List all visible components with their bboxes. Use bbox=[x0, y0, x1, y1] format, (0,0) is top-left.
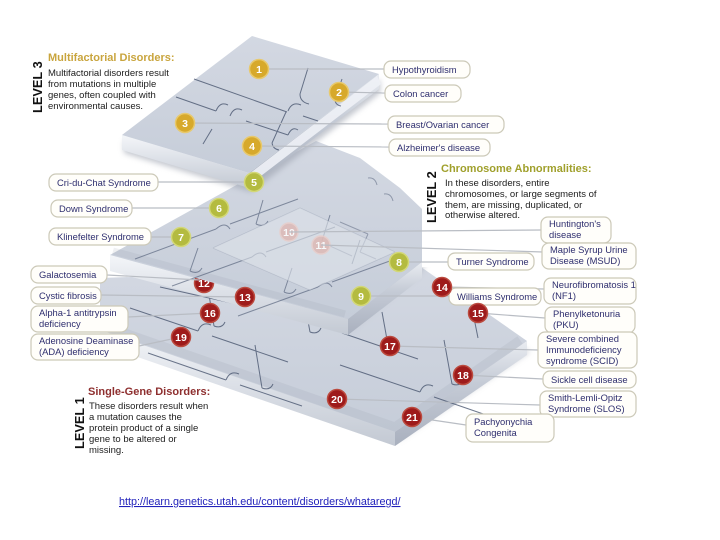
svg-text:Down Syndrome: Down Syndrome bbox=[59, 203, 128, 214]
svg-text:Disease (MSUD): Disease (MSUD) bbox=[550, 255, 620, 266]
svg-text:Multifactorial disorders resul: Multifactorial disorders result bbox=[48, 68, 169, 79]
svg-text:5: 5 bbox=[251, 177, 257, 189]
svg-text:Syndrome (SLOS): Syndrome (SLOS) bbox=[548, 403, 625, 414]
svg-text:Severe combined: Severe combined bbox=[546, 333, 619, 344]
svg-text:Colon cancer: Colon cancer bbox=[393, 88, 448, 99]
svg-text:11: 11 bbox=[315, 240, 326, 252]
svg-text:18: 18 bbox=[457, 370, 469, 382]
svg-text:15: 15 bbox=[472, 308, 484, 320]
svg-text:Single-Gene Disorders:: Single-Gene Disorders: bbox=[88, 386, 210, 398]
svg-text:Chromosome Abnormalities:: Chromosome Abnormalities: bbox=[441, 163, 592, 175]
svg-text:20: 20 bbox=[331, 394, 343, 406]
svg-text:Alpha-1 antitrypsin: Alpha-1 antitrypsin bbox=[39, 307, 117, 318]
svg-text:disease: disease bbox=[549, 229, 581, 240]
svg-text:Williams Syndrome: Williams Syndrome bbox=[457, 291, 537, 302]
svg-text:2: 2 bbox=[336, 87, 342, 99]
svg-text:6: 6 bbox=[216, 203, 222, 215]
svg-text:Huntington's: Huntington's bbox=[549, 218, 601, 229]
svg-text:http://learn.genetics.utah.edu: http://learn.genetics.utah.edu/content/d… bbox=[119, 496, 401, 508]
svg-text:deficiency: deficiency bbox=[39, 318, 81, 329]
svg-text:Multifactorial Disorders:: Multifactorial Disorders: bbox=[48, 52, 175, 64]
svg-text:Alzheimer's disease: Alzheimer's disease bbox=[397, 142, 480, 153]
svg-text:Congenita: Congenita bbox=[474, 427, 518, 438]
svg-text:Sickle cell disease: Sickle cell disease bbox=[551, 374, 628, 385]
svg-text:4: 4 bbox=[249, 141, 255, 153]
svg-text:syndrome (SCID): syndrome (SCID) bbox=[546, 355, 618, 366]
svg-text:10: 10 bbox=[283, 227, 295, 239]
svg-text:9: 9 bbox=[358, 291, 364, 303]
svg-text:13: 13 bbox=[239, 292, 251, 304]
svg-text:Maple Syrup Urine: Maple Syrup Urine bbox=[550, 244, 628, 255]
svg-text:Adenosine Deaminase: Adenosine Deaminase bbox=[39, 335, 133, 346]
svg-text:Breast/Ovarian cancer: Breast/Ovarian cancer bbox=[396, 119, 489, 130]
svg-text:chromosomes, or large segments: chromosomes, or large segments of bbox=[445, 189, 597, 200]
svg-text:Turner Syndrome: Turner Syndrome bbox=[456, 256, 529, 267]
svg-text:Neurofibromatosis 1: Neurofibromatosis 1 bbox=[552, 279, 636, 290]
svg-text:Immunodeficiency: Immunodeficiency bbox=[546, 344, 622, 355]
svg-text:a mutation causes the: a mutation causes the bbox=[89, 412, 182, 423]
svg-text:(ADA) deficiency: (ADA) deficiency bbox=[39, 346, 109, 357]
svg-text:Galactosemia: Galactosemia bbox=[39, 269, 97, 280]
svg-text:3: 3 bbox=[182, 118, 188, 130]
svg-text:16: 16 bbox=[204, 308, 216, 320]
svg-text:(NF1): (NF1) bbox=[552, 290, 576, 301]
svg-text:from mutations in multiple: from mutations in multiple bbox=[48, 79, 156, 90]
svg-text:otherwise altered.: otherwise altered. bbox=[445, 210, 520, 221]
svg-text:19: 19 bbox=[175, 332, 187, 344]
svg-text:21: 21 bbox=[406, 412, 418, 424]
svg-text:LEVEL 2: LEVEL 2 bbox=[424, 171, 439, 223]
svg-text:8: 8 bbox=[396, 257, 402, 269]
svg-text:17: 17 bbox=[384, 341, 396, 353]
svg-text:In these disorders, entire: In these disorders, entire bbox=[445, 178, 550, 189]
svg-text:Hypothyroidism: Hypothyroidism bbox=[392, 64, 457, 75]
svg-text:environmental causes.: environmental causes. bbox=[48, 101, 143, 112]
svg-text:14: 14 bbox=[436, 282, 448, 294]
svg-text:LEVEL 3: LEVEL 3 bbox=[30, 61, 45, 113]
svg-text:(PKU): (PKU) bbox=[553, 319, 579, 330]
svg-text:Cri-du-Chat Syndrome: Cri-du-Chat Syndrome bbox=[57, 177, 151, 188]
svg-text:Smith-Lemli-Opitz: Smith-Lemli-Opitz bbox=[548, 392, 623, 403]
svg-text:genes, often coupled with: genes, often coupled with bbox=[48, 90, 156, 101]
svg-text:Pachyonychia: Pachyonychia bbox=[474, 416, 533, 427]
svg-text:missing.: missing. bbox=[89, 445, 124, 456]
svg-text:7: 7 bbox=[178, 232, 184, 244]
svg-text:Klinefelter Syndrome: Klinefelter Syndrome bbox=[57, 231, 144, 242]
svg-text:These disorders result when: These disorders result when bbox=[89, 401, 208, 412]
svg-text:gene to be altered or: gene to be altered or bbox=[89, 434, 177, 445]
svg-text:1: 1 bbox=[256, 64, 262, 76]
svg-text:Phenylketonuria: Phenylketonuria bbox=[553, 308, 621, 319]
svg-text:LEVEL 1: LEVEL 1 bbox=[72, 397, 87, 449]
svg-text:Cystic fibrosis: Cystic fibrosis bbox=[39, 290, 97, 301]
svg-text:protein product of a single: protein product of a single bbox=[89, 423, 198, 434]
